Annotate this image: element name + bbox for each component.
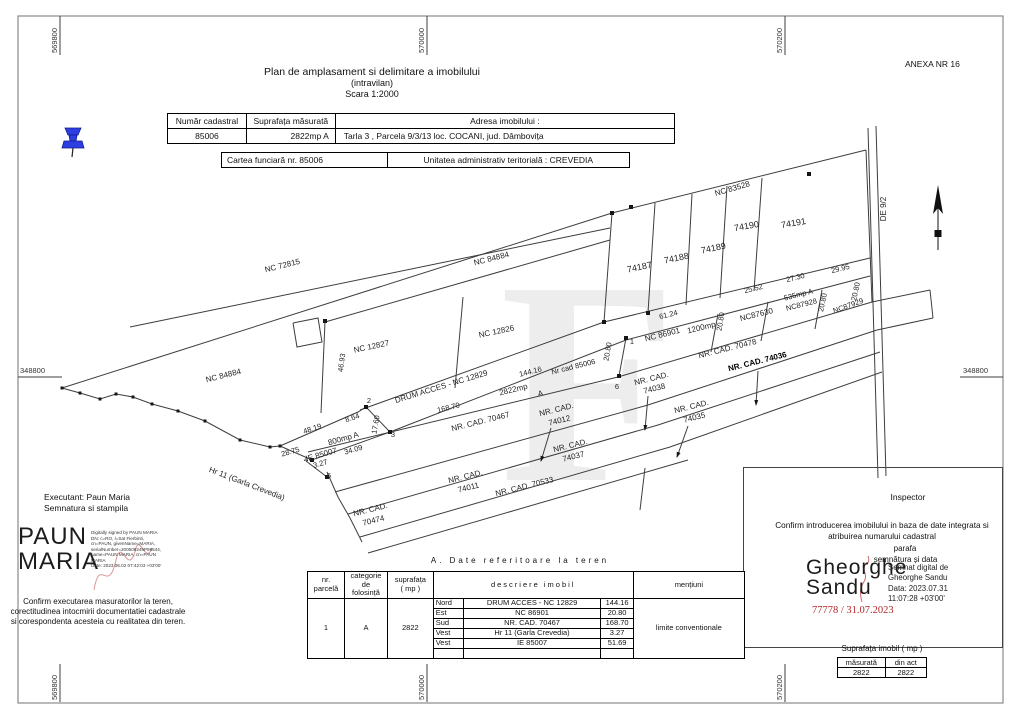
map-label: 34.09 — [343, 443, 364, 457]
th-masurata: măsurată — [838, 658, 886, 668]
map-label: NC 84884 — [205, 367, 243, 385]
th-numar-cadastral: Număr cadastral — [168, 114, 247, 129]
map-label: NR. CAD. 70478 — [697, 337, 758, 360]
grid-label-bottom: 569800 — [50, 675, 59, 700]
map-label: 1 — [630, 337, 634, 346]
cell-length: 168.70 — [601, 618, 633, 628]
suprafata-imobil-title: Suprafața imobil ( mp ) — [826, 644, 938, 653]
cell-boundary: NC 86901 — [463, 608, 601, 618]
cadastral-plan-sheet: F NC 72815NC 84884NC 84884NC 12827NC 128… — [0, 0, 1019, 720]
map-label: NC 83528 — [714, 179, 752, 198]
map-label: 74035 — [683, 410, 707, 424]
cell-din-act: 2822 — [885, 668, 926, 678]
cell-length: 51.69 — [601, 638, 633, 648]
map-label: 2 — [367, 396, 371, 405]
north-arrow — [933, 185, 943, 250]
cell-direction: Vest — [433, 628, 463, 638]
grid-label-right: 348800 — [963, 366, 988, 375]
carte-funciara-table: Cartea funciară nr. 85006 Unitatea admin… — [221, 152, 630, 168]
cell-length: 3.27 — [601, 628, 633, 638]
inspector-parafa-label: parafa — [855, 544, 955, 553]
executant-signature-details: Digitally signed by PAUN MARIA DN: c=RO,… — [91, 530, 211, 569]
map-label: Hr 11 (Garla Crevedia) — [208, 465, 287, 502]
map-label: 46.93 — [336, 353, 348, 373]
map-label: 1200mp — [686, 320, 717, 336]
cell-boundary — [463, 648, 601, 658]
map-label: 74190 — [733, 219, 759, 233]
th-adresa-imobilului: Adresa imobilului : — [335, 114, 674, 129]
grid-label-top: 569800 — [50, 28, 59, 53]
map-label: NR. CAD. 74036 — [727, 350, 788, 373]
cell-boundary: Hr 11 (Garla Crevedia) — [463, 628, 601, 638]
th-nr-parcela: nr. parcelă — [308, 572, 345, 599]
cell-boundary: NR. CAD. 70467 — [463, 618, 601, 628]
executant-signature-name: PAUN MARIA — [18, 524, 99, 574]
map-label: 5 — [327, 471, 331, 480]
executant-stamp-line: Semnatura si stampila — [44, 503, 130, 514]
executant-heading: Executant: Paun Maria Semnatura si stamp… — [44, 492, 130, 513]
grid-label-left: 348800 — [20, 366, 45, 375]
cell-length: 20.80 — [601, 608, 633, 618]
anexa-label: ANEXA NR 16 — [905, 59, 960, 69]
map-label: 27.30 — [785, 271, 805, 284]
cell-boundary: IE 85007 — [463, 638, 601, 648]
teren-table-title: A. Date referitoare la teren — [385, 556, 655, 565]
th-suprafata-mp: suprafața ( mp ) — [387, 572, 433, 599]
grid-label-top: 570200 — [775, 28, 784, 53]
inspector-signature-details: Semnat digital de Gheorghe Sandu Data: 2… — [888, 563, 974, 604]
cell-direction — [433, 648, 463, 658]
executant-name-line: Executant: Paun Maria — [44, 492, 130, 503]
cell-length — [601, 648, 633, 658]
registration-number: 77778 / 31.07.2023 — [812, 605, 932, 616]
map-label: 29.95 — [830, 262, 850, 275]
inspector-confirm-text: Confirm introducerea imobilului in baza … — [768, 521, 996, 542]
suprafata-imobil-table: măsurată din act 2822 2822 — [837, 657, 927, 678]
map-label: 70474 — [362, 513, 386, 527]
map-label: 20.80 — [714, 312, 726, 332]
map-label: 74191 — [780, 216, 806, 230]
map-label: DE 9/2 — [879, 196, 888, 221]
map-label: 3 — [391, 430, 395, 439]
cell-boundary: DRUM ACCES - NC 12829 — [463, 598, 601, 608]
executant-confirm-text: Confirm executarea masuratorilor la tere… — [10, 597, 186, 627]
map-label: 168.70 — [436, 400, 460, 414]
grid-label-bottom: 570000 — [417, 675, 426, 700]
th-mentiuni: mențiuni — [633, 572, 744, 599]
cell-suprafata-masurata: 2822mp A — [246, 129, 335, 144]
map-label: 4 — [304, 455, 308, 464]
plan-title-line2: (intravilan) — [170, 78, 574, 89]
map-label: 25.52 — [743, 282, 763, 295]
cell-direction: Vest — [433, 638, 463, 648]
plan-title-line3: Scara 1:2000 — [170, 89, 574, 100]
map-label: 48.19 — [302, 421, 323, 435]
cell-suprafata: 2822 — [387, 598, 433, 658]
cell-numar-cadastral: 85006 — [168, 129, 247, 144]
cell-length: 144.16 — [601, 598, 633, 608]
cadastral-header-table: Număr cadastral Suprafața măsurată Adres… — [167, 113, 675, 144]
map-label: 17.60 — [369, 415, 381, 435]
th-descriere-imobil: descriere imobil — [433, 572, 633, 599]
plan-title: Plan de amplasament si delimitare a imob… — [170, 67, 574, 100]
cell-carte-funciara: Cartea funciară nr. 85006 — [222, 153, 388, 168]
map-label: 20.80 — [816, 292, 829, 312]
cell-direction: Est — [433, 608, 463, 618]
map-label: NC87929 — [832, 296, 865, 315]
teren-table: nr. parcelă categorie de folosință supra… — [307, 571, 745, 659]
grid-label-bottom: 570200 — [775, 675, 784, 700]
map-label: DRUM ACCES - NC 12829 — [394, 368, 489, 405]
plan-title-line1: Plan de amplasament si delimitare a imob… — [170, 67, 574, 78]
cell-uat: Unitatea administrativ teritorială : CRE… — [387, 153, 629, 168]
inspector-title: Inspector — [838, 492, 978, 502]
th-categorie-folosinta: categorie de folosință — [344, 572, 387, 599]
map-label: 6 — [615, 382, 619, 391]
grid-label-top: 570000 — [417, 28, 426, 53]
cell-categorie: A — [344, 598, 387, 658]
map-label: NC 12827 — [353, 338, 391, 354]
map-label: 74011 — [457, 480, 481, 494]
th-suprafata-masurata: Suprafața măsurată — [246, 114, 335, 129]
cell-masurata: 2822 — [838, 668, 886, 678]
cell-nr-parcela: 1 — [308, 598, 345, 658]
th-din-act: din act — [885, 658, 926, 668]
cell-adresa-imobilului: Tarla 3 , Parcela 9/3/13 loc. COCANI, ju… — [335, 129, 674, 144]
cell-direction: Nord — [433, 598, 463, 608]
map-label: 8.64 — [344, 411, 361, 424]
cell-direction: Sud — [433, 618, 463, 628]
map-label: 28.75 — [280, 445, 301, 459]
map-label: NC 72815 — [264, 257, 302, 275]
pushpin-icon — [62, 128, 84, 157]
cell-mentiuni: limite conventionale — [633, 598, 744, 658]
